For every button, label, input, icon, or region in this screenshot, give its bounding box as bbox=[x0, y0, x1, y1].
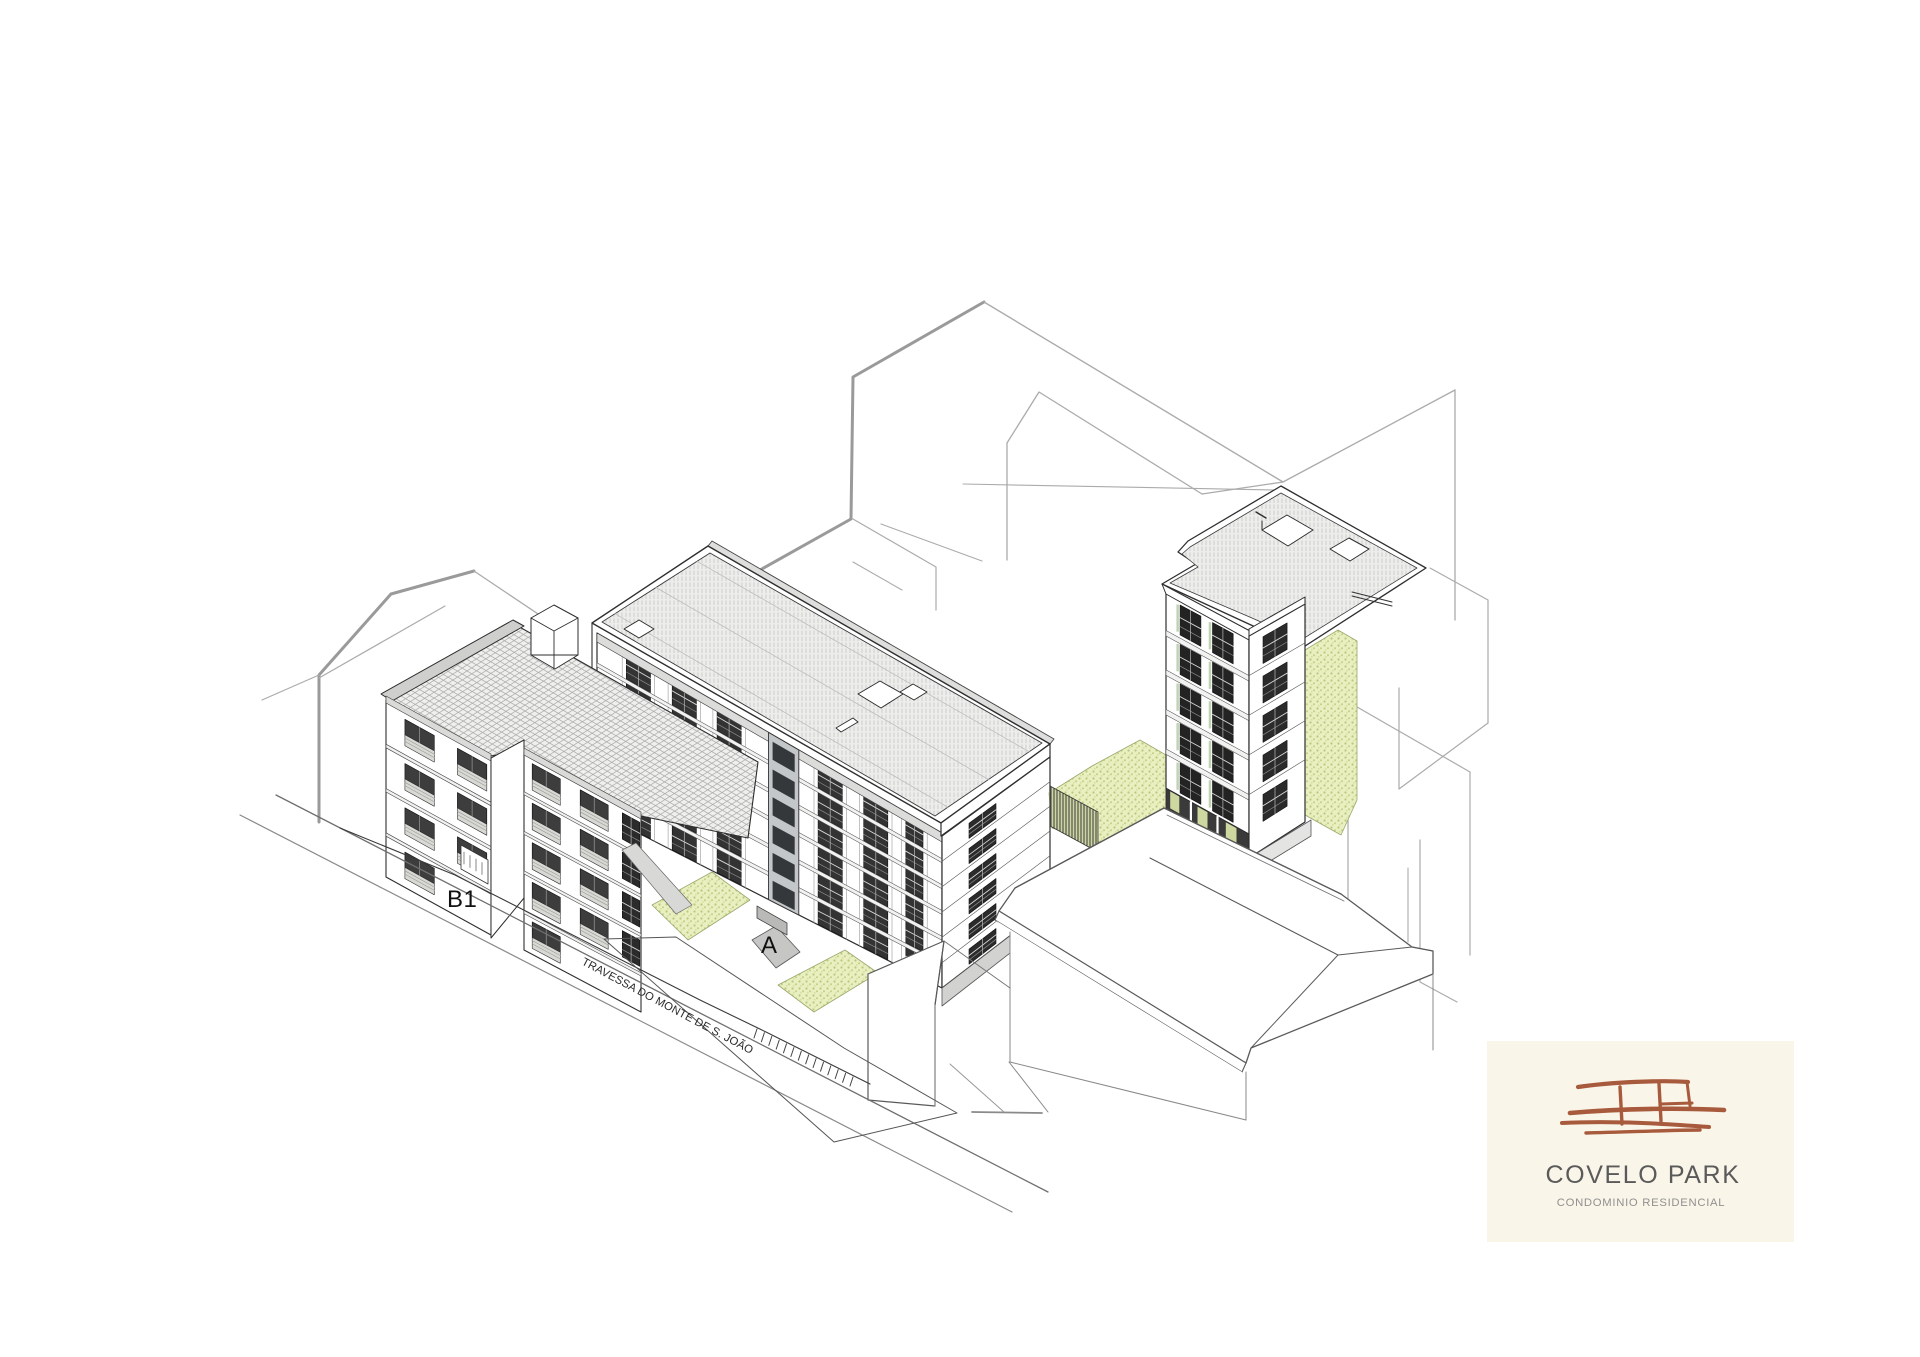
svg-text:A: A bbox=[761, 932, 777, 959]
svg-text:CONDOMINIO RESIDENCIAL: CONDOMINIO RESIDENCIAL bbox=[1557, 1197, 1726, 1209]
svg-text:COVELO PARK: COVELO PARK bbox=[1546, 1161, 1741, 1189]
svg-text:B1: B1 bbox=[447, 886, 477, 913]
